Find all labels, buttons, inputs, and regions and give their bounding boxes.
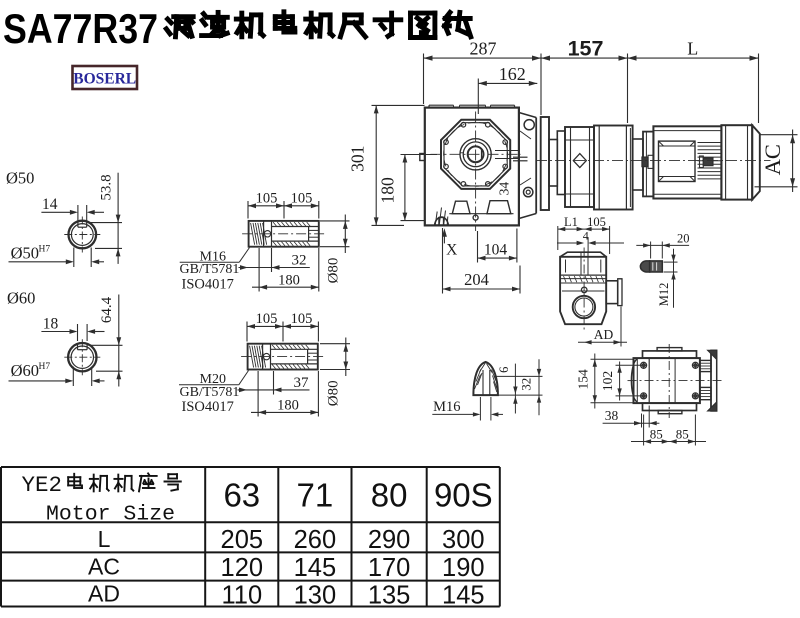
svg-text:38: 38 [605, 408, 619, 423]
svg-text:145: 145 [294, 554, 337, 582]
svg-text:Motor Size: Motor Size [46, 503, 175, 527]
svg-text:180: 180 [378, 177, 398, 204]
svg-text:Ø80: Ø80 [326, 258, 342, 284]
svg-text:53.8: 53.8 [99, 174, 115, 200]
svg-text:14: 14 [42, 196, 58, 213]
svg-text:135: 135 [368, 582, 411, 610]
svg-text:AD: AD [88, 581, 120, 607]
svg-text:SA77R37: SA77R37 [3, 5, 158, 52]
svg-text:80: 80 [371, 477, 408, 514]
svg-text:X: X [446, 242, 457, 259]
svg-text:GB/T5781: GB/T5781 [180, 385, 240, 400]
svg-text:180: 180 [278, 273, 300, 289]
svg-text:H7: H7 [39, 245, 51, 255]
svg-text:104: 104 [484, 242, 508, 259]
svg-text:L: L [98, 526, 111, 552]
svg-text:L1: L1 [564, 215, 578, 229]
svg-text:260: 260 [294, 526, 337, 554]
svg-text:205: 205 [221, 526, 264, 554]
svg-text:105: 105 [256, 191, 278, 207]
svg-text:18: 18 [43, 316, 59, 333]
svg-text:32: 32 [519, 378, 534, 391]
svg-text:H7: H7 [39, 362, 51, 372]
svg-text:Ø50: Ø50 [11, 243, 39, 262]
svg-text:301: 301 [348, 146, 368, 172]
svg-text:145: 145 [442, 582, 485, 610]
svg-text:90S: 90S [434, 477, 493, 514]
svg-text:Ø60: Ø60 [7, 289, 35, 308]
svg-text:102: 102 [600, 371, 615, 391]
svg-text:ISO4017: ISO4017 [182, 399, 234, 415]
svg-text:M16: M16 [433, 399, 460, 415]
svg-text:85: 85 [676, 426, 689, 441]
svg-text:37: 37 [294, 375, 310, 391]
svg-text:L: L [687, 39, 698, 59]
svg-text:105: 105 [256, 311, 278, 327]
svg-text:20: 20 [677, 231, 690, 245]
svg-text:110: 110 [221, 582, 262, 610]
svg-text:204: 204 [464, 270, 489, 289]
svg-text:64.4: 64.4 [99, 296, 115, 323]
svg-text:63: 63 [223, 477, 260, 514]
svg-text:AD: AD [594, 327, 614, 342]
svg-text:300: 300 [442, 526, 485, 554]
svg-text:105: 105 [291, 311, 313, 327]
svg-text:157: 157 [568, 37, 604, 61]
svg-text:105: 105 [587, 215, 606, 229]
svg-text:GB/T5781: GB/T5781 [180, 262, 240, 277]
svg-text:BOSERL: BOSERL [73, 71, 136, 88]
svg-text:105: 105 [291, 191, 313, 207]
svg-text:120: 120 [221, 554, 264, 582]
svg-text:M12: M12 [657, 283, 671, 307]
svg-text:290: 290 [368, 526, 411, 554]
svg-text:6: 6 [497, 367, 511, 373]
svg-text:180: 180 [277, 397, 299, 413]
svg-text:AC: AC [88, 554, 120, 580]
svg-text:34: 34 [496, 182, 511, 196]
svg-text:Ø80: Ø80 [326, 380, 342, 406]
svg-text:287: 287 [470, 39, 497, 59]
svg-text:Ø50: Ø50 [6, 169, 34, 188]
svg-text:162: 162 [499, 64, 526, 84]
svg-text:190: 190 [442, 554, 485, 582]
svg-text:ISO4017: ISO4017 [182, 276, 234, 292]
svg-text:Ø60: Ø60 [11, 361, 39, 380]
svg-text:170: 170 [368, 554, 411, 582]
svg-text:85: 85 [650, 426, 663, 441]
svg-text:YE2: YE2 [22, 472, 63, 498]
svg-text:AC: AC [760, 144, 785, 175]
svg-text:32: 32 [292, 252, 307, 268]
svg-text:130: 130 [294, 582, 337, 610]
svg-text:154: 154 [575, 369, 590, 390]
svg-text:71: 71 [297, 477, 334, 514]
